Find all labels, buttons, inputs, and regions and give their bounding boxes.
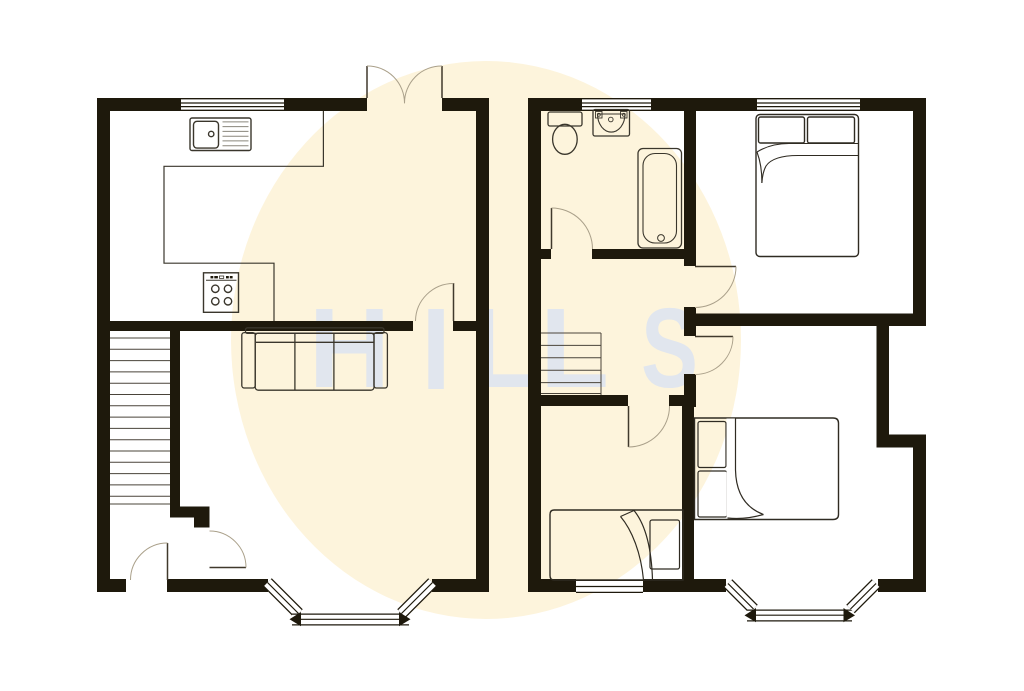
svg-text:L: L [540,285,609,411]
svg-text:H: H [309,285,391,411]
